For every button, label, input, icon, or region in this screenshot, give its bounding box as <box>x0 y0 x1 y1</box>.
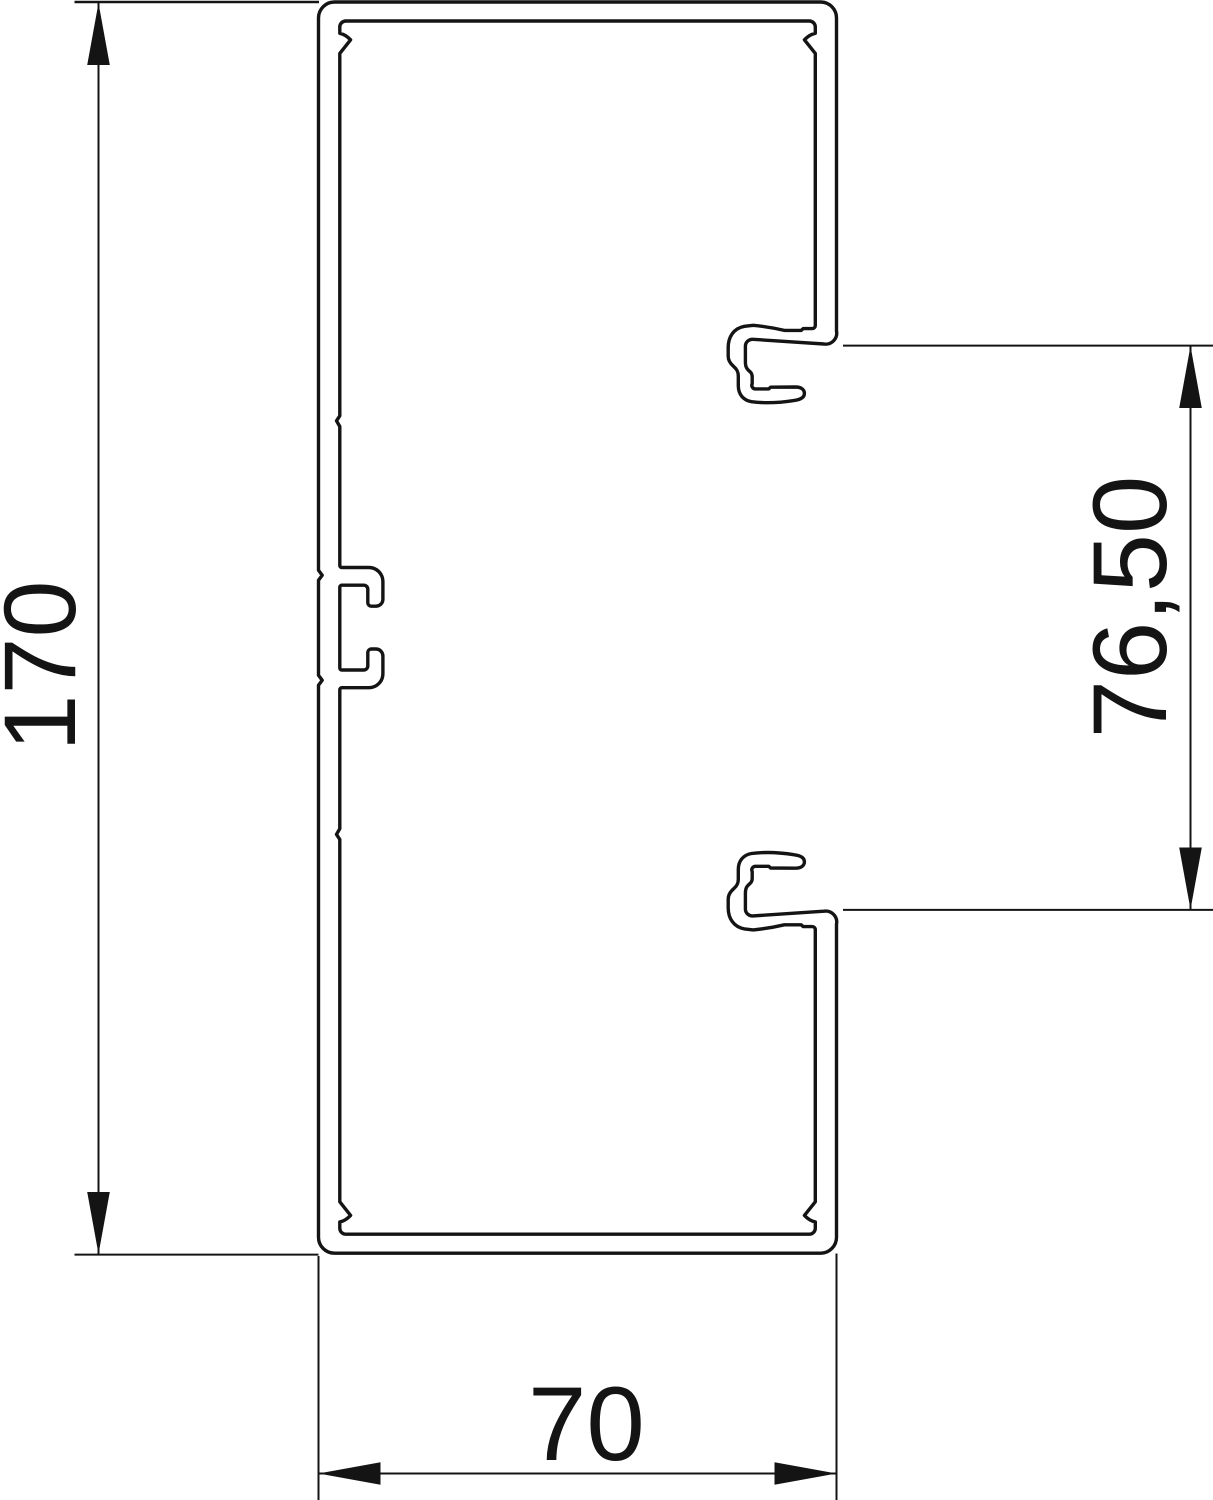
svg-text:70: 70 <box>528 1366 645 1483</box>
svg-text:76,50: 76,50 <box>1072 476 1189 739</box>
svg-text:170: 170 <box>0 580 97 751</box>
